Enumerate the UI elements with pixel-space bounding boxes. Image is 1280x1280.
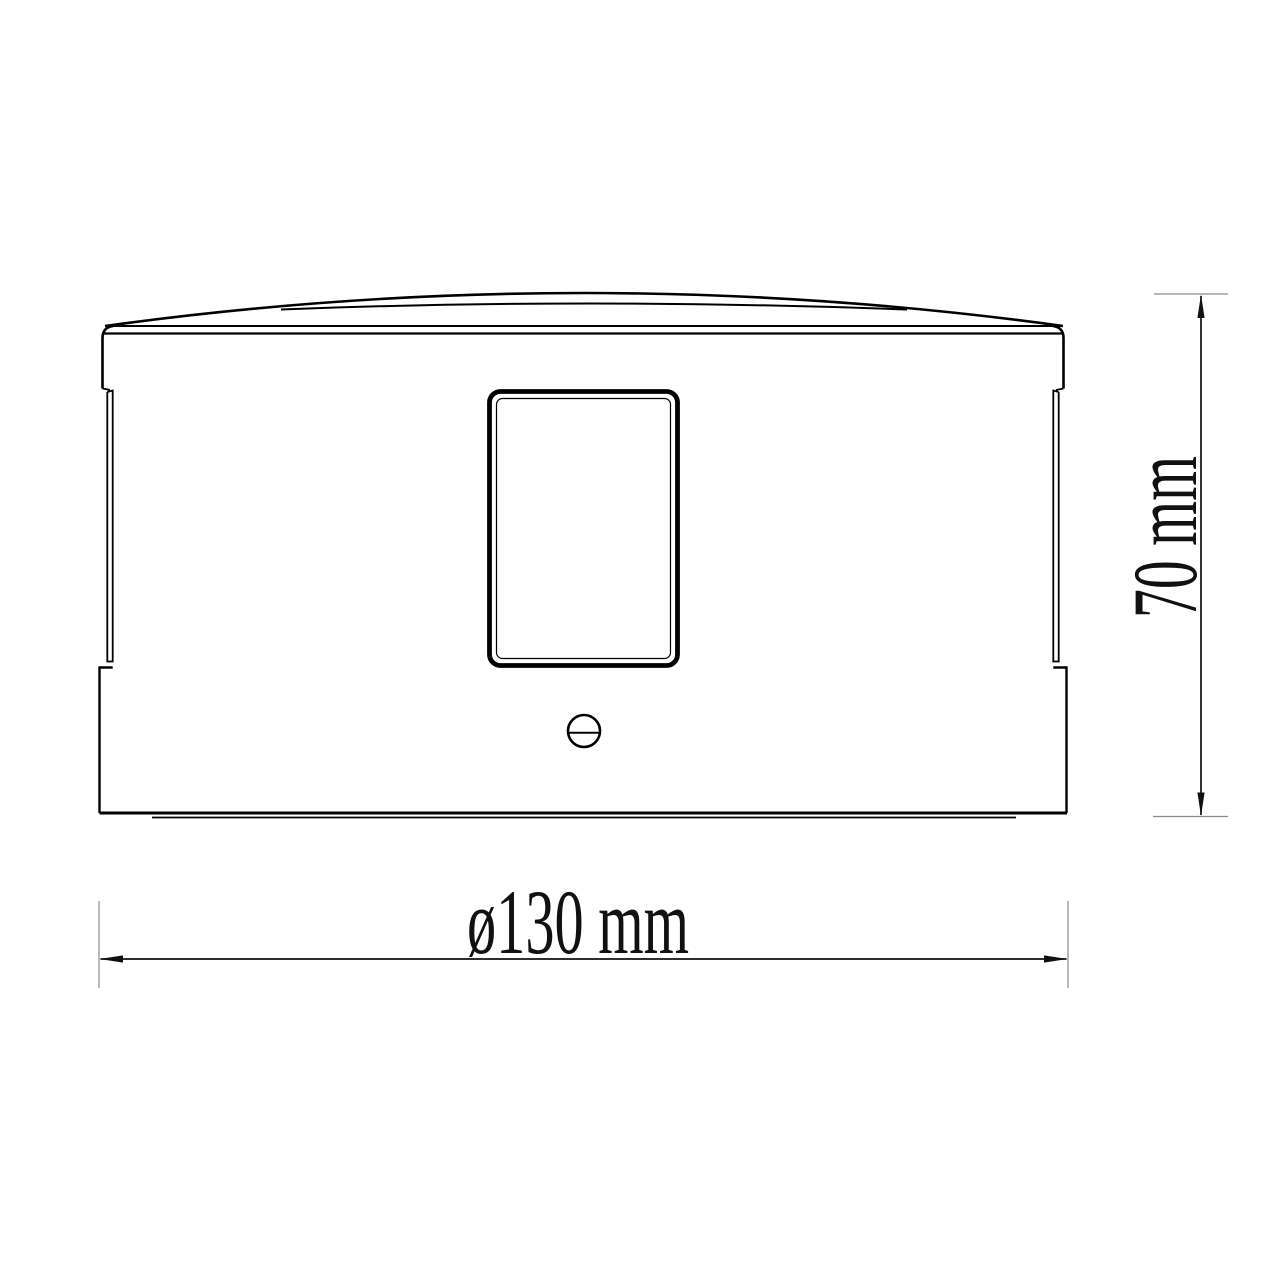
diameter-dimension-label: ø130 mm — [467, 871, 689, 973]
lower-wall-right — [1053, 668, 1066, 814]
screw-head — [568, 715, 600, 747]
diameter-arrow-left — [100, 955, 124, 962]
diameter-dimension: ø130 mm — [99, 871, 1068, 988]
seam-right — [1053, 389, 1063, 662]
height-arrow-down — [1197, 793, 1204, 817]
front-window-panel-inner-line — [497, 399, 671, 659]
lower-wall-left — [100, 668, 113, 814]
height-dimension: 70 mm — [1114, 294, 1228, 817]
elevation-drawing: 70 mm ø130 mm — [0, 0, 1280, 1280]
front-window-panel — [490, 392, 678, 666]
height-dimension-label: 70 mm — [1114, 456, 1216, 618]
dome-crease-line — [281, 304, 907, 310]
fixture-body — [100, 293, 1068, 818]
height-arrow-up — [1197, 295, 1204, 319]
upper-wall-right — [1053, 326, 1064, 389]
drawing-canvas: 70 mm ø130 mm — [0, 0, 1280, 1280]
dome-arc — [105, 293, 1063, 326]
seam-left — [103, 389, 113, 662]
diameter-arrow-right — [1044, 955, 1068, 962]
upper-wall-left — [103, 326, 114, 389]
